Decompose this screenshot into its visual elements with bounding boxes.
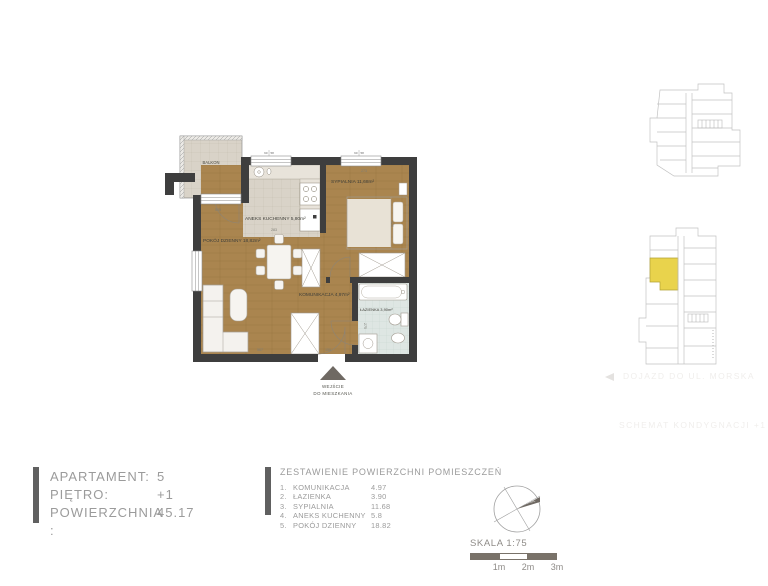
dim-bedroom-side: 420 (390, 221, 394, 227)
row-name: KOMUNIKACJA (293, 483, 371, 492)
wall-notch-b (165, 173, 174, 195)
row-number: 4. (280, 511, 293, 520)
svg-text:58: 58 (361, 151, 365, 155)
access-arrow-icon (605, 373, 614, 381)
bathtub (359, 284, 407, 300)
balcony-railing-top (180, 136, 242, 140)
floor-value: +1 (157, 486, 174, 504)
svg-text:90: 90 (264, 151, 268, 155)
area-label: POWIERZCHNIA : (50, 504, 157, 540)
table-row: 4. ANEKS KUCHENNY 5.8 (280, 511, 502, 520)
wall-bedroom-divider (320, 165, 326, 233)
row-value: 11.68 (371, 502, 401, 511)
room-lines-left (657, 104, 686, 160)
entrance-marker: WEJŚCIE DO MIESZKANIA (313, 366, 352, 396)
scale-tick-3m: 3m (546, 562, 568, 572)
corridor-lines (678, 236, 684, 364)
chair (275, 281, 284, 290)
row-number: 2. (280, 492, 293, 501)
dim-bathroom-side: 275 (363, 323, 367, 329)
row-value: 4.97 (371, 483, 401, 492)
table-row: 1. KOMUNIKACJA 4.97 (280, 483, 502, 492)
wall-bedroom-bottom-a (326, 277, 330, 283)
building-overview-highlight (630, 222, 730, 372)
wall-bath-left-b (352, 345, 358, 354)
stair-treads (692, 314, 704, 322)
entrance-label-1: WEJŚCIE (322, 382, 344, 389)
dim-living-bottom: 567 (257, 348, 263, 352)
divider-bar (265, 467, 271, 515)
living-room-window (192, 251, 202, 291)
info-row-area: POWIERZCHNIA : 45.17 (50, 504, 195, 540)
svg-text:58: 58 (271, 151, 275, 155)
row-name: ŁAZIENKA (293, 492, 371, 501)
chair (275, 235, 284, 244)
kitchen-sink (254, 167, 264, 177)
wall-bedroom-bottom-b (350, 277, 409, 283)
apartment-info-block: APARTAMENT: 5 PIĘTRO: +1 POWIERZCHNIA : … (33, 467, 195, 540)
pillow (393, 202, 403, 222)
room-lines-right (692, 100, 740, 168)
apartment-value: 5 (157, 468, 165, 486)
floor-plan-page: BALKON 3,71 m² 90 58 (0, 0, 768, 586)
wall-kitchen-left (241, 157, 249, 203)
dim-kitchen: 283 (271, 228, 277, 232)
nightstand (399, 183, 407, 195)
entrance-arrow-icon (320, 366, 346, 380)
table-row: 3. SYPIALNIA 11.68 (280, 502, 502, 511)
kitchen-faucet (267, 169, 271, 175)
scale-bar (470, 553, 557, 560)
balcony-railing-left (180, 136, 184, 198)
row-number: 5. (280, 521, 293, 530)
dim-hall-bottom: 150 (325, 348, 331, 352)
balcony-label: BALKON (203, 160, 220, 165)
stairwell (688, 314, 708, 322)
scale-segment-dark (470, 553, 499, 560)
svg-text:90: 90 (354, 151, 358, 155)
floor-label: PIĘTRO: (50, 486, 157, 504)
scale-segment-light (499, 553, 528, 560)
bedroom-label: SYPIALNIA 11,68m² (331, 179, 375, 185)
chair (293, 249, 302, 258)
window-marks: 90 58 90 58 (264, 150, 364, 156)
balcony-door-window (201, 194, 241, 204)
area-table-title: ZESTAWIENIE POWIERZCHNI POMIESZCZEŃ (280, 467, 502, 477)
kitchen-label: ANEKS KUCHENNY 5,80m² (245, 216, 306, 222)
toilet-bowl (389, 314, 401, 325)
kitchen-window (251, 156, 291, 166)
scale-tick-1m: 1m (488, 562, 510, 572)
row-name: ANEKS KUCHENNY (293, 511, 371, 520)
apartment-floor-plan: BALKON 3,71 m² 90 58 (155, 125, 435, 410)
table-row: 2. ŁAZIENKA 3.90 (280, 492, 502, 501)
chair (293, 266, 302, 275)
dim-living-top: 505 (215, 208, 221, 212)
area-value: 45.17 (157, 504, 195, 540)
corridor-lines (686, 93, 692, 173)
info-row-floor: PIĘTRO: +1 (50, 486, 195, 504)
divider-bar (33, 467, 39, 523)
dining-table (267, 245, 291, 279)
chair (256, 266, 265, 275)
compass-rose: PÓŁNOC (486, 480, 550, 544)
wall-bottom-right (345, 354, 417, 362)
hallway-label: KOMUNIKACJA 4,97m² (299, 292, 350, 298)
bathroom-label: ŁAZIENKA 3,90m² (360, 307, 393, 312)
coffee-table (230, 289, 247, 321)
bed-blanket (347, 199, 391, 247)
row-value: 5.8 (371, 511, 401, 520)
entrance-label-2: DO MIESZKANIA (313, 391, 352, 396)
row-value: 18.82 (371, 521, 401, 530)
bedroom-window (341, 156, 381, 166)
building-outline (650, 84, 740, 176)
row-number: 1. (280, 483, 293, 492)
room-area-table: ZESTAWIENIE POWIERZCHNI POMIESZCZEŃ 1. K… (265, 467, 502, 530)
apartment-label: APARTAMENT: (50, 468, 157, 486)
dim-bedroom-top: 273 (361, 169, 367, 173)
pillow (393, 224, 403, 244)
row-number: 3. (280, 502, 293, 511)
stove (300, 183, 320, 205)
stair-treads (702, 120, 718, 128)
row-name: SYPIALNIA (293, 502, 371, 511)
info-row-apartment: APARTAMENT: 5 (50, 468, 195, 486)
bathroom-sink (392, 333, 405, 343)
chair (256, 249, 265, 258)
scale-label: SKALA 1:75 (470, 538, 527, 549)
wall-right (409, 157, 417, 362)
scale-segment-dark (528, 553, 557, 560)
building-overview-top (640, 80, 744, 190)
room-lines-right (684, 248, 716, 346)
wall-bottom-left (193, 354, 318, 362)
scale-tick-2m: 2m (517, 562, 539, 572)
column (313, 215, 317, 219)
living-room-label: POKÓJ DZIENNY 18,82m² (203, 237, 261, 244)
access-note: DOJAZD DO UL. MORSKA (623, 371, 755, 381)
toilet-tank (401, 313, 408, 326)
row-name: POKÓJ DZIENNY (293, 521, 371, 530)
highlighted-apartment-unit (650, 258, 678, 290)
wall-bath-left-a (352, 283, 358, 321)
floor-schematic-note: SCHEMAT KONDYGNACJI +1 (619, 420, 766, 430)
row-value: 3.90 (371, 492, 401, 501)
table-row: 5. POKÓJ DZIENNY 18.82 (280, 521, 502, 530)
washing-machine (359, 334, 377, 353)
